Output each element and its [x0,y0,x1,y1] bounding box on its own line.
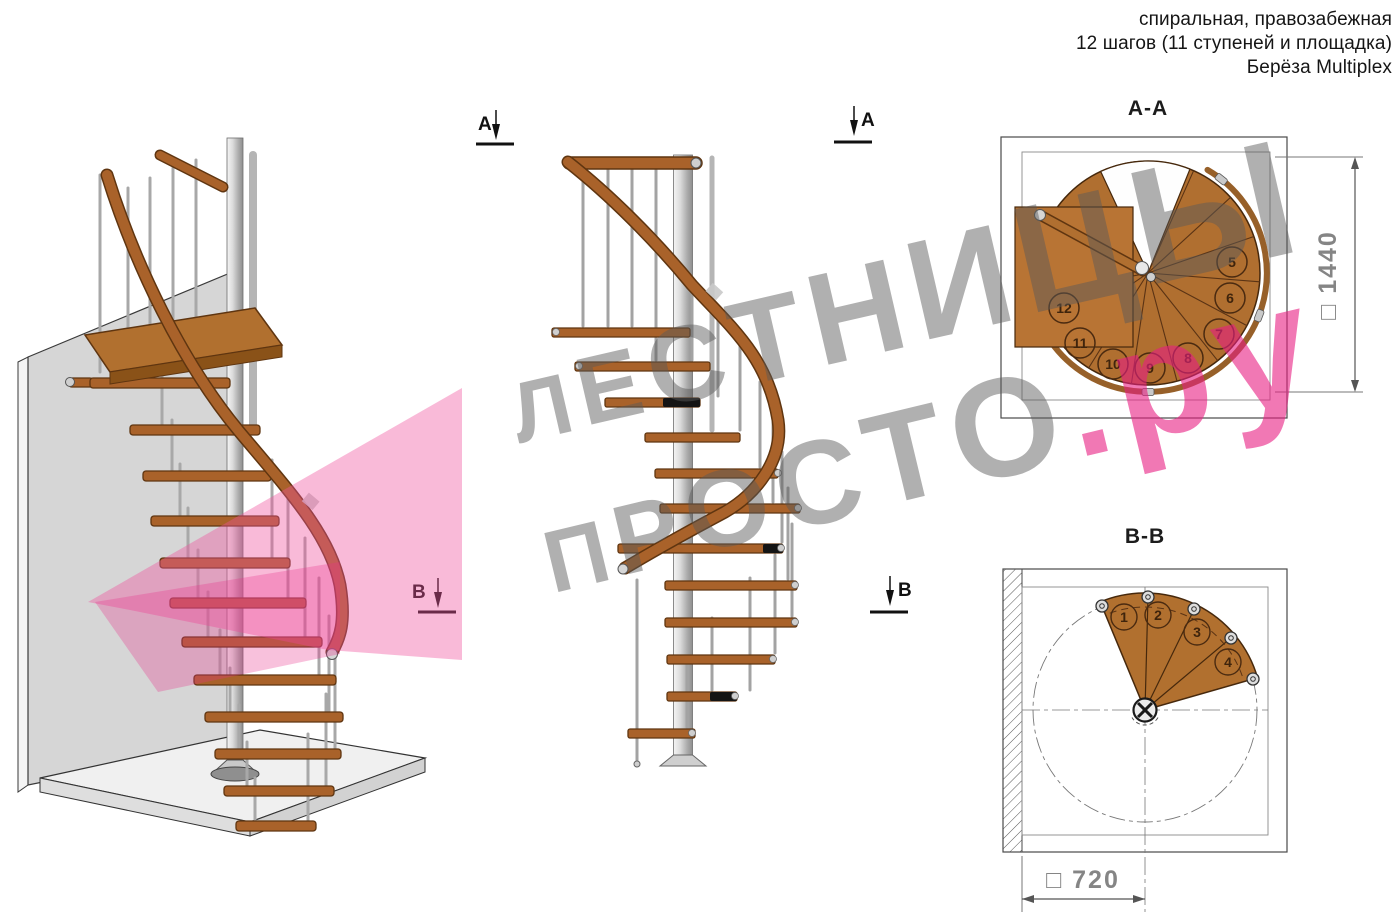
dimension-1440: □ 1440 [1275,157,1363,392]
plan-aa: А-А 5 6 7 [995,95,1395,435]
wall-side-face [18,357,28,792]
step-number: 7 [1215,326,1223,342]
centre-pole [674,155,693,765]
pole-top [1147,273,1156,282]
pole-section [1132,699,1158,726]
drawing-page: спиральная, правозабежная 12 шагов (11 с… [0,0,1400,923]
step-number: 8 [1184,350,1192,366]
section-letter-a: А [861,110,875,131]
handrail-cap [1035,210,1046,221]
section-letter-a: А [478,114,492,135]
step-number: 10 [1105,356,1121,372]
baluster-foot [634,761,640,767]
spec-line-type: спиральная, правозабежная [1076,8,1392,32]
handrail-end-cap [618,564,628,574]
spec-line-material: Берёза Multiplex [1076,56,1392,80]
dimension-720: □ 720 [1022,856,1145,912]
plan-aa-title: А-А [1128,97,1168,120]
section-letter-b: В [898,580,912,601]
step-number: 5 [1228,254,1236,270]
spec-header: спиральная, правозабежная 12 шагов (11 с… [1076,8,1392,80]
dim-arrow-icon [1351,380,1359,392]
elevation-view: А А В [470,100,970,850]
dimension-label: □ 720 [1046,866,1120,894]
section-marker-a-left: А [476,110,514,144]
rail-fitting [691,158,701,168]
plan-bb: В-В 1 2 3 4 [995,520,1395,923]
section-arrow-icon [850,120,858,136]
step-number: 1 [1120,609,1128,625]
section-marker-a-right: А [834,106,875,142]
step-number: 4 [1224,654,1232,670]
step-number: 11 [1073,335,1088,351]
section-arrow-icon [492,124,500,140]
plan-bb-title: В-В [1125,525,1165,548]
stub-cap [66,378,75,387]
step-number: 9 [1146,360,1154,376]
section-marker-b-right: В [870,576,912,612]
section-arrow-icon [886,590,894,606]
pole-base-ring [211,767,259,781]
spec-line-steps: 12 шагов (11 ступеней и площадка) [1076,32,1392,56]
wall-hatch [1003,569,1022,852]
dim-arrow-icon [1133,895,1145,903]
step-number: 3 [1193,624,1201,640]
iso-view: В [10,130,470,870]
dim-arrow-icon [1022,895,1034,903]
landing-rail [160,155,223,187]
pole-flange [660,755,706,766]
step-number: 2 [1154,607,1162,623]
handrail-ball [1136,262,1149,275]
dim-arrow-icon [1351,157,1359,169]
step-number: 6 [1226,290,1234,306]
dimension-label: □ 1440 [1314,230,1342,320]
step-number: 12 [1056,300,1072,316]
